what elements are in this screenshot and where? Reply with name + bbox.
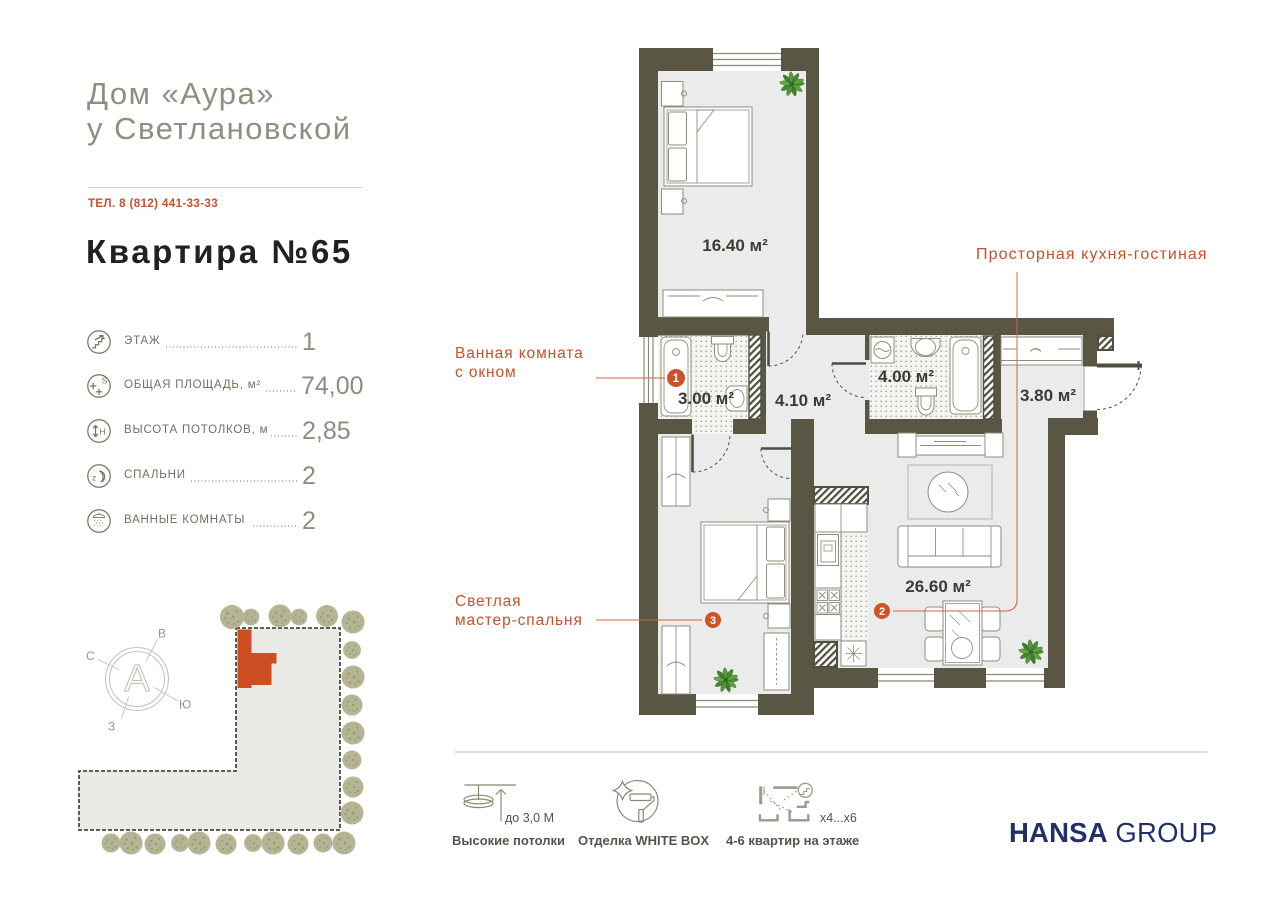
svg-text:А: А — [124, 658, 150, 700]
svg-text:Ю: Ю — [179, 698, 191, 712]
svg-text:З: З — [108, 720, 115, 734]
svg-text:1: 1 — [673, 373, 680, 385]
svg-text:4.00 м²: 4.00 м² — [878, 367, 934, 386]
svg-text:до 3,0 М: до 3,0 М — [505, 811, 554, 825]
svg-text:2: 2 — [879, 606, 885, 618]
svg-text:3.00 м²: 3.00 м² — [678, 389, 734, 408]
svg-text:26.60 м²: 26.60 м² — [905, 577, 971, 596]
svg-text:С: С — [86, 649, 95, 663]
svg-text:х4...х6: х4...х6 — [820, 811, 857, 825]
svg-text:3: 3 — [710, 615, 716, 627]
svg-text:4.10 м²: 4.10 м² — [775, 391, 831, 410]
svg-text:16.40 м²: 16.40 м² — [702, 236, 768, 255]
svg-text:3.80 м²: 3.80 м² — [1020, 386, 1076, 405]
svg-text:В: В — [158, 627, 166, 641]
